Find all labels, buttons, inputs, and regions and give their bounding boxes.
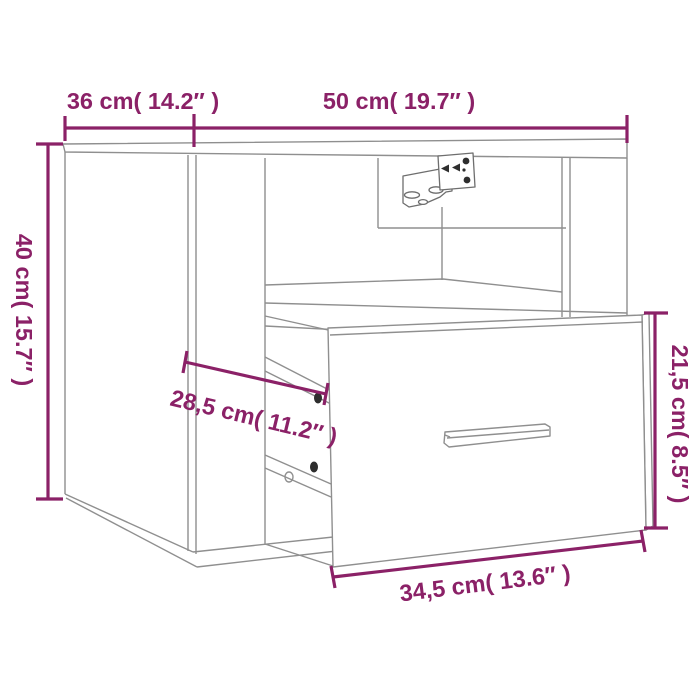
diagram-canvas: 36 cm( 14.2″ ) 50 cm( 19.7″ ) 40 cm( 15.… (0, 0, 700, 700)
bottom-panel-front-edge (193, 535, 352, 552)
bracket-slot-small (419, 200, 428, 205)
drawer-side-bottom-edge (265, 544, 333, 566)
lower-rail-top-line (265, 455, 331, 484)
dimension-line-side-depth (65, 114, 194, 147)
left-panel-bottom-edge (65, 494, 193, 552)
left-panel-bottom-under-edge (66, 498, 197, 567)
label-drawer-front-height: 21,5 cm( 8.5″ ) (667, 345, 693, 504)
lower-rail-screw (310, 462, 318, 473)
drawer-front (328, 313, 653, 567)
wall-bracket (403, 153, 475, 207)
shelf-top-edge (265, 279, 562, 292)
bracket-screw-dot (462, 168, 465, 171)
bottom-panel-under-edge (197, 549, 354, 567)
lower-rail-bottom-line (265, 468, 331, 497)
dimension-line-front-width (194, 115, 627, 143)
top-panel (63, 139, 627, 158)
label-front-width: 50 cm( 19.7″ ) (323, 88, 475, 114)
label-side-depth: 36 cm( 14.2″ ) (67, 88, 219, 114)
dimension-diagram: 36 cm( 14.2″ ) 50 cm( 19.7″ ) 40 cm( 15.… (0, 0, 700, 700)
dimension-line-height (36, 144, 63, 499)
shelf-front-bottom-edge (265, 303, 627, 313)
label-drawer-inner-depth: 28,5 cm( 11.2″ ) (168, 385, 340, 450)
drawer-slide-lower-rail (265, 455, 331, 497)
drawer-slide-upper-rail (265, 357, 331, 404)
bracket-screw-bottom (464, 177, 471, 184)
bracket-mount-plate (438, 153, 475, 190)
upper-rail-top-line (265, 357, 331, 391)
bracket-screw-top (463, 158, 470, 165)
bracket-slot-left (405, 192, 420, 198)
label-height: 40 cm( 15.7″ ) (11, 234, 37, 386)
